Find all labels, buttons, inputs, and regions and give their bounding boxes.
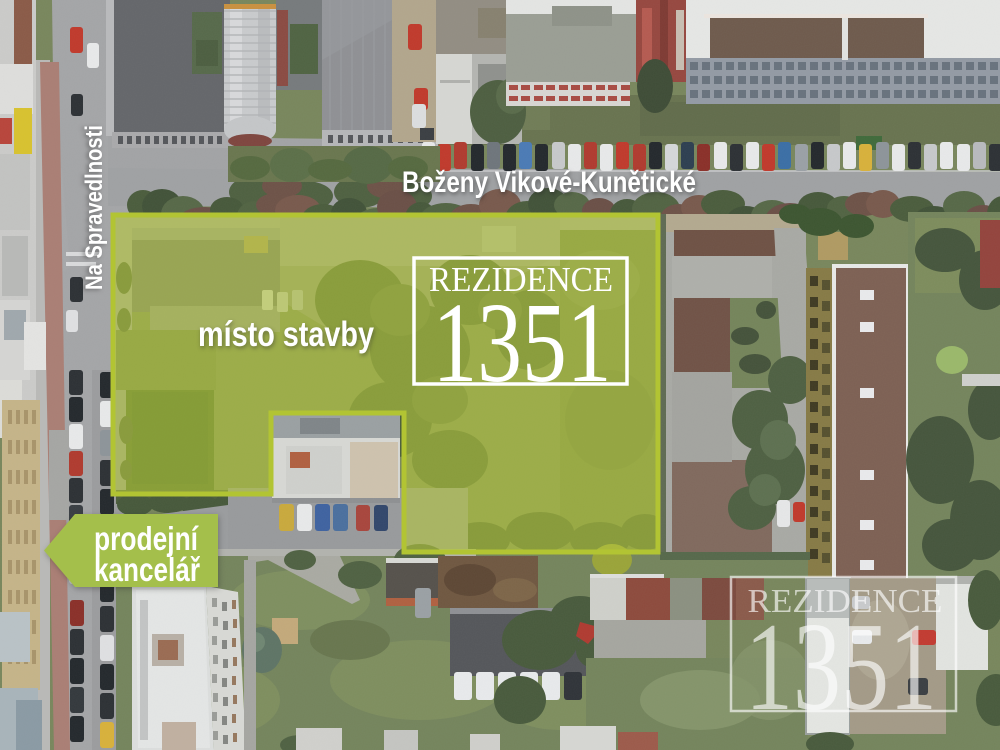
- svg-text:1351: 1351: [745, 598, 937, 737]
- svg-text:1351: 1351: [433, 279, 612, 406]
- svg-text:kancelář: kancelář: [94, 551, 200, 588]
- svg-text:Boženy Vikové-Kunětické: Boženy Vikové-Kunětické: [402, 166, 696, 199]
- svg-text:místo stavby: místo stavby: [198, 315, 374, 354]
- svg-text:Na Spravedlnosti: Na Spravedlnosti: [81, 125, 108, 290]
